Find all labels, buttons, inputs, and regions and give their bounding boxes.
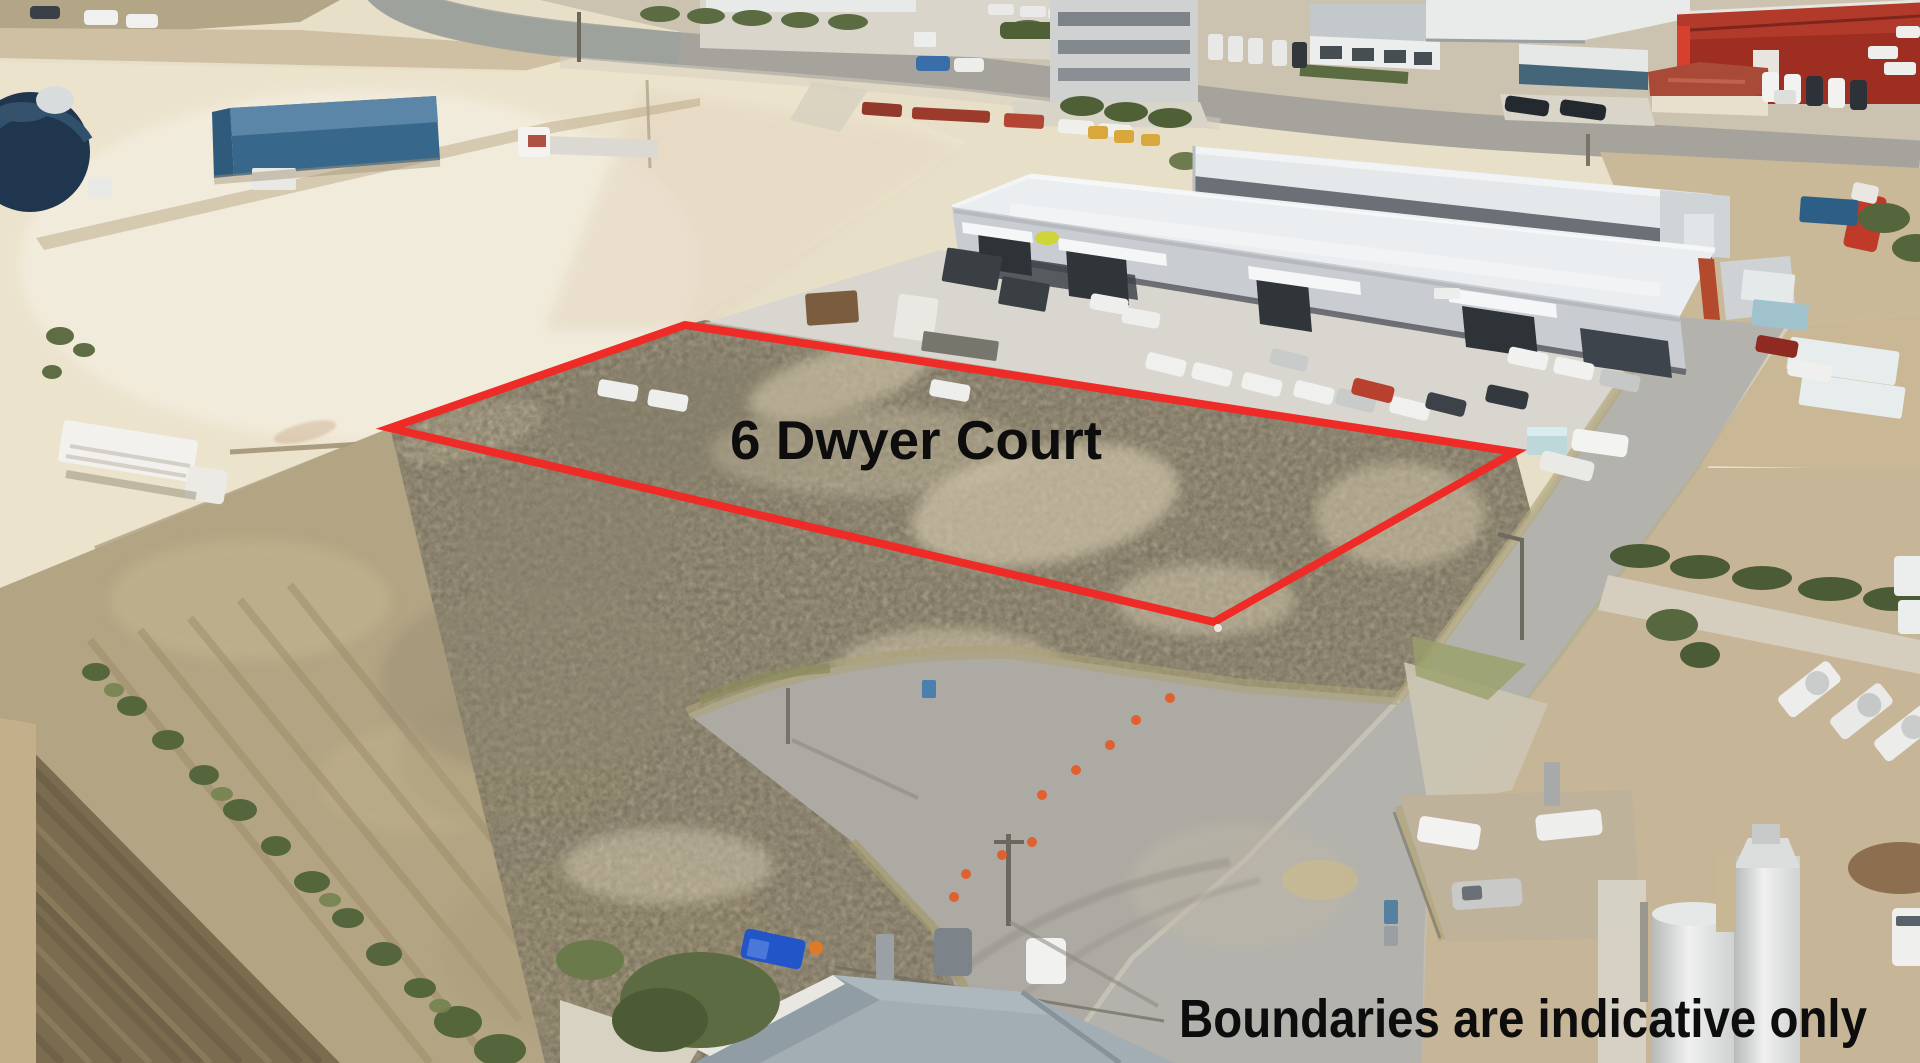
svg-text:Boundaries are indicative only: Boundaries are indicative only (1179, 989, 1867, 1049)
svg-text:6 Dwyer Court: 6 Dwyer Court (730, 409, 1102, 471)
